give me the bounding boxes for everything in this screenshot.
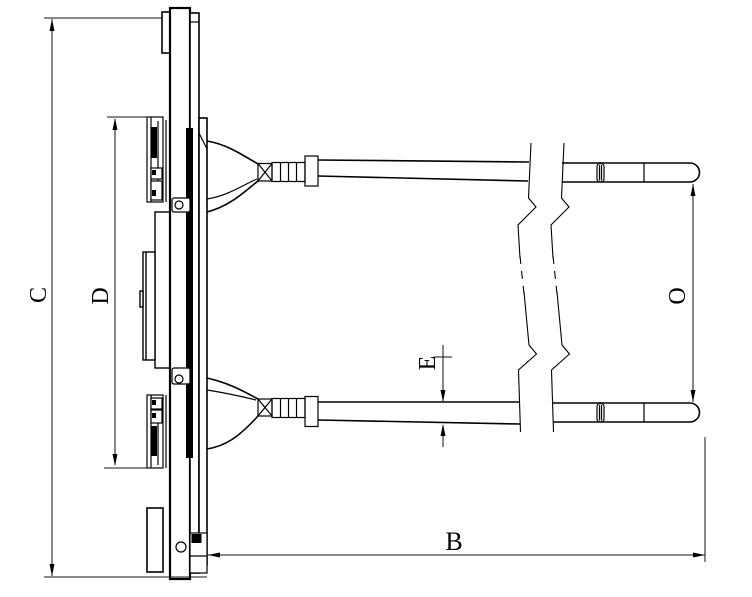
top-fork-arm xyxy=(207,141,700,212)
funnel-bottom-edge xyxy=(207,181,258,212)
lower-clamp-unit xyxy=(147,395,166,468)
bottom-left-tab xyxy=(147,508,163,572)
ring-segments xyxy=(272,163,305,182)
mounting-plate xyxy=(199,118,207,565)
tip-ring xyxy=(597,164,644,183)
rail-section-fill xyxy=(186,128,193,458)
dimension-label-e: E xyxy=(415,356,441,371)
x-collar xyxy=(258,399,272,416)
dimension-label-o: O xyxy=(665,287,691,304)
arrowhead-down xyxy=(441,390,446,402)
arrowhead-down xyxy=(113,454,118,466)
tip-ring xyxy=(597,404,644,423)
mounting-hole xyxy=(176,542,186,552)
arrowhead-down xyxy=(691,390,696,402)
funnel-top-edge xyxy=(207,378,258,399)
dimension-label-d: D xyxy=(88,287,114,304)
backplate-assembly xyxy=(140,8,207,579)
technical-drawing-page: C D E O B xyxy=(0,0,752,597)
bottom-fork-arm xyxy=(207,378,700,449)
funnel-top-edge xyxy=(207,141,258,164)
upper-clamp-unit xyxy=(147,117,166,202)
arm-tip xyxy=(562,163,700,182)
break-lines xyxy=(518,143,570,432)
arrowhead-up xyxy=(441,424,446,436)
dimension-arm-thickness: E xyxy=(415,345,452,447)
x-collar xyxy=(258,164,272,182)
fork-clamp-engineering-drawing: C D E O B xyxy=(0,0,752,597)
step-collar xyxy=(305,397,318,427)
arrowhead-down xyxy=(50,564,55,576)
arrowhead-up xyxy=(50,19,55,31)
dimension-arm-length: B xyxy=(208,437,705,562)
arrowhead-up xyxy=(691,184,696,196)
ring-segments xyxy=(272,399,305,418)
dimension-label-b: B xyxy=(445,527,462,556)
arrowhead-up xyxy=(113,118,118,130)
arrowhead-left xyxy=(208,553,220,558)
arm-tip xyxy=(553,403,700,422)
dimension-label-c: C xyxy=(26,287,52,303)
funnel-bottom-edge xyxy=(207,416,258,449)
dimension-jaw-opening: O xyxy=(665,184,696,402)
step-collar xyxy=(305,156,318,186)
arrowhead-right xyxy=(693,553,705,558)
